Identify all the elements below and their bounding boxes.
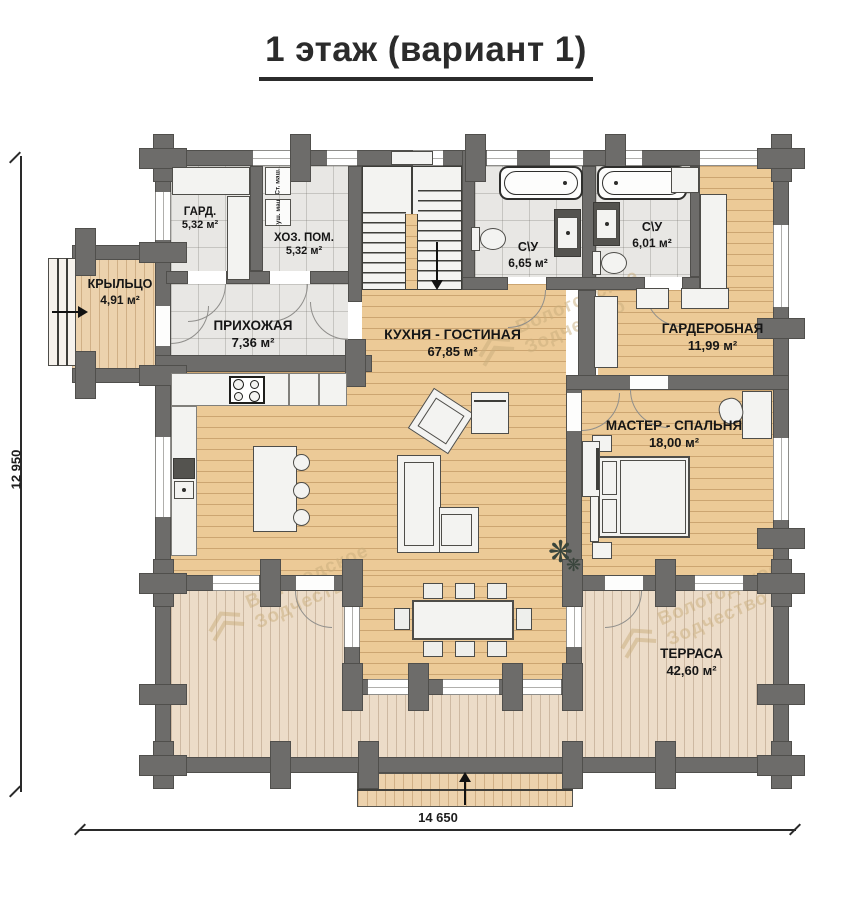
bed-blanket [620,460,686,534]
window [487,150,517,166]
stair-arrow-line [436,242,438,282]
nightstand [592,542,612,559]
counter-line [288,373,290,406]
wardrobe-closet [636,288,669,309]
log-joint [465,134,486,182]
bar-stool [293,509,310,526]
room-label-master: МАСТЕР - СПАЛЬНЯ 18,00 м² [595,418,753,451]
dining-chair [455,641,475,657]
stair-window-sill [391,151,433,165]
log-joint [655,741,676,789]
log-joint [75,228,96,276]
wall-stair-left-a [348,166,362,302]
log-joint [655,559,676,607]
pillow [602,461,617,495]
room-label-su1: С\У 6,65 м² [492,240,564,271]
pillow [602,499,617,533]
log-joint [139,148,187,169]
stair-gap [405,214,418,289]
log-joint [139,684,187,705]
room-label-kryltso: КРЫЛЬЦО 4,91 м² [70,277,170,308]
window [368,679,408,695]
room-label-prihozhaya: ПРИХОЖАЯ 7,36 м² [194,318,312,351]
dining-chair [487,641,507,657]
sofa-cushion [441,514,472,546]
toilet-bowl [601,252,627,274]
log-joint [75,351,96,399]
window [344,605,360,647]
toilet-tank [471,227,480,251]
burner [233,379,244,390]
log-joint [562,663,583,711]
window [773,438,789,520]
dining-chair [394,608,410,630]
wardrobe-closet [681,288,729,309]
bar-stool [293,482,310,499]
wall-bottom-right [566,575,789,591]
window [550,150,583,166]
sink-drain [605,222,609,226]
washing-machine-label: Ст. маш. [275,168,282,194]
wall-bath-bottom-a [462,277,508,290]
window [700,150,764,166]
counter-line [318,373,320,406]
page-title: 1 этаж (вариант 1) [259,30,593,81]
burner [234,392,243,401]
log-joint [757,755,805,776]
door-gap-terrace-living [296,576,334,590]
door-gap-entrance [156,306,170,346]
sofa-cushion [404,462,434,546]
log-joint [757,148,805,169]
window [443,679,499,695]
plant: ❋ [566,556,581,574]
log-joint [139,573,187,594]
terrace-arrow-line [464,781,466,805]
window [517,679,561,695]
entrance-arrow-head [78,306,88,318]
window [566,605,582,647]
door-gap-terrace-bedroom [605,576,643,590]
room-label-kitchen: КУХНЯ - ГОСТИНАЯ 67,85 м² [360,326,545,360]
duct-shaft [594,296,618,368]
room-label-hoz: ХОЗ. ПОМ. 5,32 м² [258,231,350,259]
kitchen-sink-unit [173,458,195,479]
window [695,575,743,591]
bar-stool [293,454,310,471]
stair-divider [411,166,413,214]
log-joint [342,663,363,711]
bathtub-faucet [614,181,618,185]
armchair [471,392,509,434]
sink-drain [566,231,570,235]
stair-arrow-head [431,280,443,290]
washing-machine: Ст. маш. [265,167,291,195]
log-joint [408,663,429,711]
drying-machine-label: Суш. маш. [275,199,282,226]
wall-hall-kitchen [155,355,372,372]
window [773,225,789,307]
bathtub [499,166,583,200]
log-joint [270,741,291,789]
log-joint [358,741,379,789]
stair-flight-left [363,212,406,289]
log-joint [260,559,281,607]
wardrobe-closet [700,194,727,291]
log-joint [139,242,187,263]
floor-plan-page: 1 этаж (вариант 1) Вологодское Зодчество… [0,0,852,918]
toilet-tank [592,251,601,275]
window [213,575,259,591]
burner [249,391,260,402]
dimension-left-value: 12 950 [9,440,24,500]
dining-chair [487,583,507,599]
door-gap-garderob [630,376,668,389]
burner [250,380,259,389]
room-label-su2: С\У 6,01 м² [616,220,688,251]
wall-terrace-edge [155,757,789,773]
dining-chair [455,583,475,599]
dining-chair [423,583,443,599]
window [327,150,357,166]
wardrobe-closet [671,167,699,193]
tv [596,448,599,490]
drying-machine: Суш. маш. [265,199,291,226]
dimension-bottom-value: 14 650 [398,810,478,825]
wall-bath-bottom-b [546,277,645,290]
log-joint [139,755,187,776]
log-joint [502,663,523,711]
dining-chair [423,641,443,657]
log-joint [342,559,363,607]
entrance-arrow-line [52,311,78,313]
log-joint [562,741,583,789]
sink-drain [182,488,186,492]
terrace-arrow-head [459,772,471,782]
page-title-row: 1 этаж (вариант 1) [0,30,852,81]
log-joint [757,528,805,549]
dining-table [412,600,514,640]
log-joint [757,573,805,594]
door-gap-bedroom [567,393,581,431]
room-label-terrasa: ТЕРРАСА 42,60 м² [644,646,739,679]
gard-shelf [172,167,250,195]
window [155,437,171,517]
bathtub-faucet [563,181,567,185]
room-label-garderobnaya: ГАРДЕРОБНАЯ 11,99 м² [645,321,780,354]
stair-flight-right [418,190,461,289]
room-label-gard: ГАРД. 5,32 м² [158,205,242,233]
kitchen-island [253,446,297,532]
log-joint [757,684,805,705]
log-joint [290,134,311,182]
dining-chair [516,608,532,630]
dimension-line-bottom [80,829,796,831]
window [253,150,290,166]
armchair-back-line [474,400,506,402]
wall-garderob-bedroom [566,375,789,390]
